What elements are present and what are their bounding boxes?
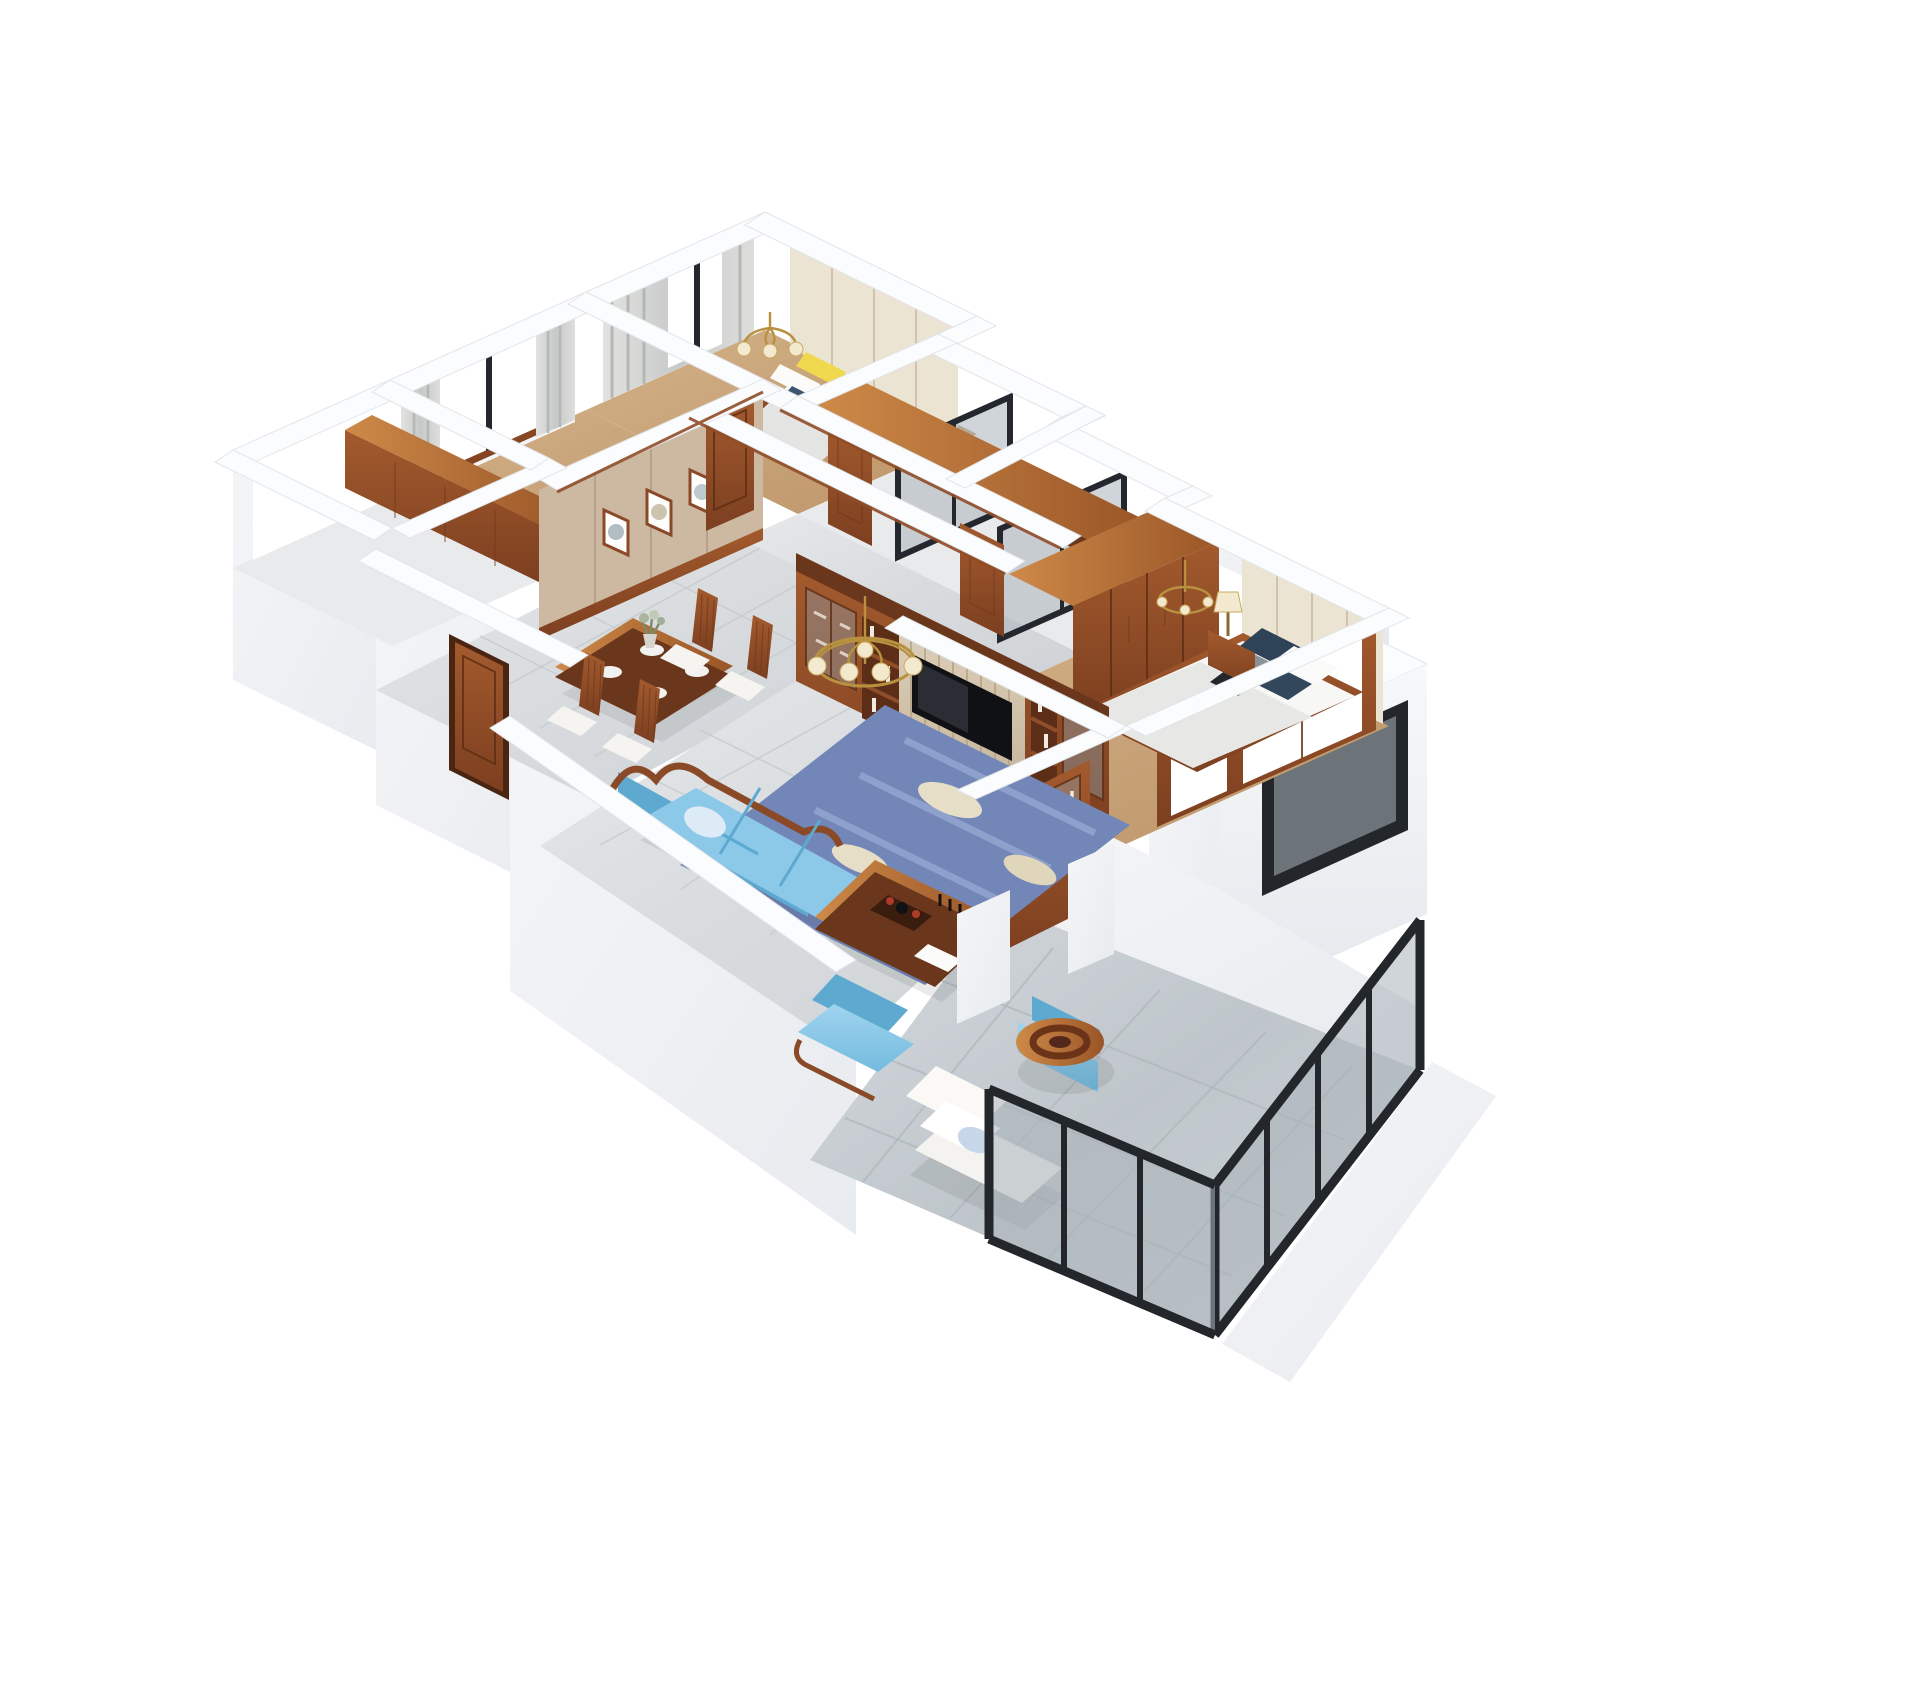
tea-pot <box>896 902 908 914</box>
chandelier-shade <box>840 663 858 681</box>
chandelier-shade <box>872 663 890 681</box>
window-frame-bar <box>694 250 700 355</box>
chandelier-shade <box>1203 597 1213 607</box>
art-print <box>608 524 624 540</box>
render-canvas <box>0 0 1920 1688</box>
balcony-north-wall-stub <box>1068 844 1114 974</box>
flowers <box>649 610 659 620</box>
chandelier-shade <box>904 657 922 675</box>
chandelier-shade <box>857 642 873 658</box>
flowers <box>657 617 665 625</box>
lamp-shade <box>1214 592 1242 612</box>
chandelier-shade <box>1180 605 1190 615</box>
floorplan-3d-render <box>0 0 1920 1688</box>
tea-cup <box>912 910 920 918</box>
chandelier-shade <box>1157 597 1167 607</box>
chandelier-shade <box>737 342 751 356</box>
chandelier-shade <box>789 342 803 356</box>
flowers <box>639 613 649 623</box>
tea-cup <box>886 897 894 905</box>
art-print <box>651 504 667 520</box>
chandelier-shade <box>763 344 777 358</box>
chandelier-shade <box>808 657 826 675</box>
stool-center <box>1049 1036 1071 1048</box>
